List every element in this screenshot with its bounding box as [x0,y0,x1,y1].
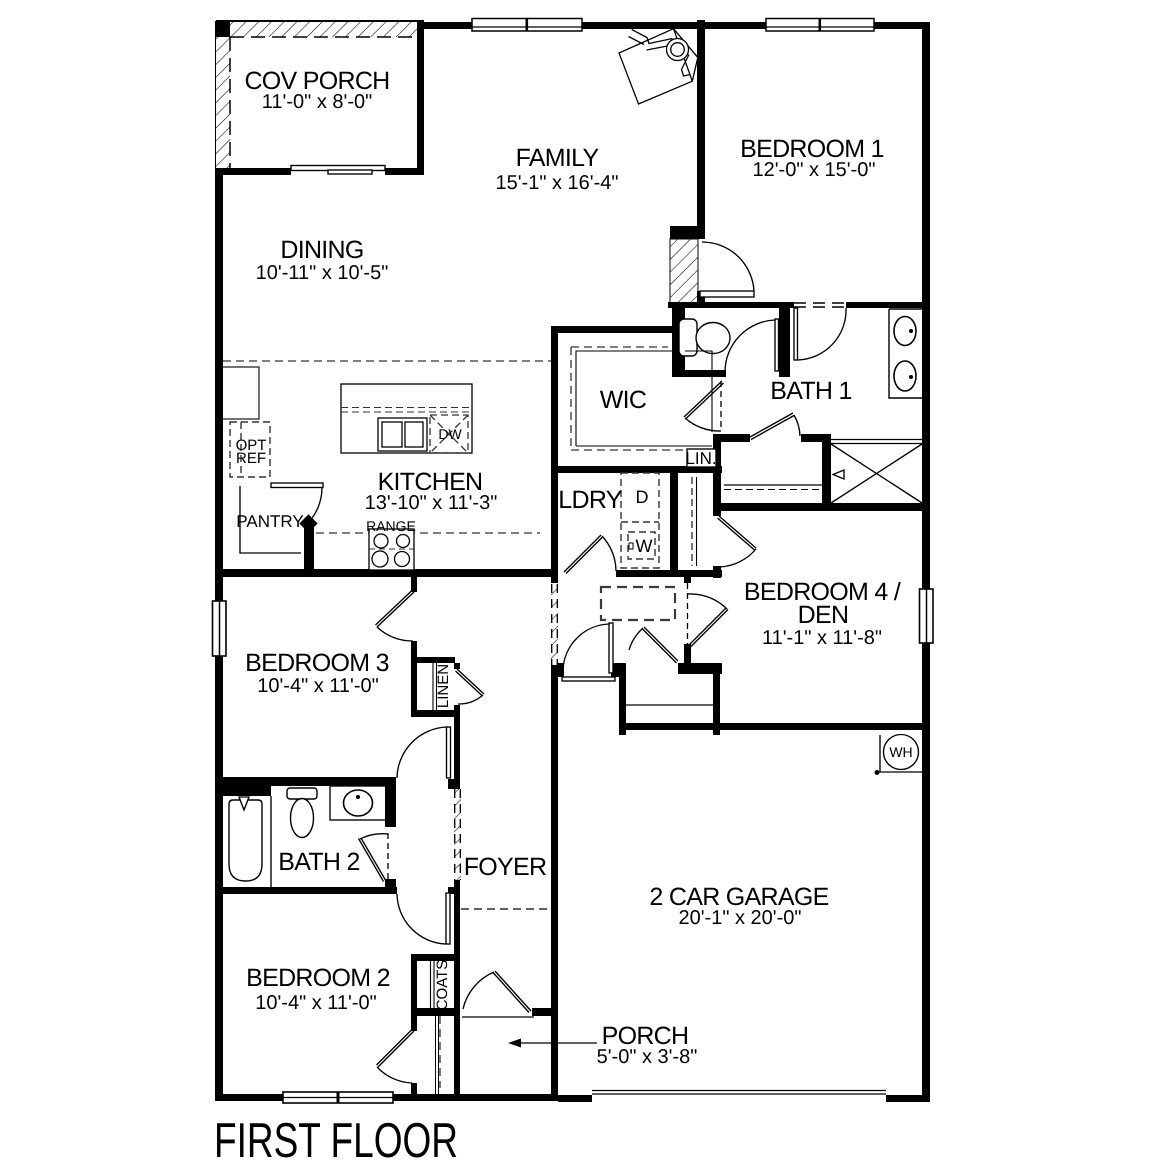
svg-text:FOYER: FOYER [464,853,547,881]
svg-text:BATH 2: BATH 2 [278,848,359,876]
svg-text:BEDROOM 2: BEDROOM 2 [246,964,390,992]
svg-text:D: D [636,487,649,507]
svg-text:LINEN: LINEN [435,664,452,708]
svg-text:11'-1" x 11'-8": 11'-1" x 11'-8" [762,627,882,649]
svg-text:REF: REF [236,450,266,467]
svg-text:20'-1" x 20'-0": 20'-1" x 20'-0" [678,907,801,929]
svg-text:W: W [636,536,653,556]
svg-text:BATH 1: BATH 1 [770,377,851,405]
svg-text:11'-0" x 8'-0": 11'-0" x 8'-0" [262,91,372,113]
svg-text:FIRST FLOOR: FIRST FLOOR [214,1114,458,1168]
svg-text:WIC: WIC [600,386,647,414]
svg-text:DEN: DEN [798,601,849,629]
svg-text:DW: DW [438,426,462,442]
svg-text:LDRY: LDRY [558,486,622,514]
svg-text:WH: WH [889,744,912,760]
svg-text:COATS: COATS [434,960,451,1011]
svg-text:13'-10" x 11'-3": 13'-10" x 11'-3" [365,492,498,514]
svg-text:BEDROOM 3: BEDROOM 3 [245,649,389,677]
svg-text:FAMILY: FAMILY [516,144,600,172]
svg-text:PANTRY: PANTRY [236,512,303,531]
svg-text:LIN.: LIN. [685,449,716,468]
svg-text:15'-1" x 16'-4": 15'-1" x 16'-4" [495,172,618,194]
svg-text:12'-0" x 15'-0": 12'-0" x 15'-0" [752,159,875,181]
svg-text:DINING: DINING [280,236,363,264]
svg-text:RANGE: RANGE [366,518,416,534]
svg-text:10'-4" x 11'-0": 10'-4" x 11'-0" [257,675,379,697]
svg-text:10'-4" x 11'-0": 10'-4" x 11'-0" [255,992,377,1014]
svg-text:5'-0" x 3'-8": 5'-0" x 3'-8" [597,1046,698,1068]
svg-text:10'-11" x 10'-5": 10'-11" x 10'-5" [256,262,389,284]
